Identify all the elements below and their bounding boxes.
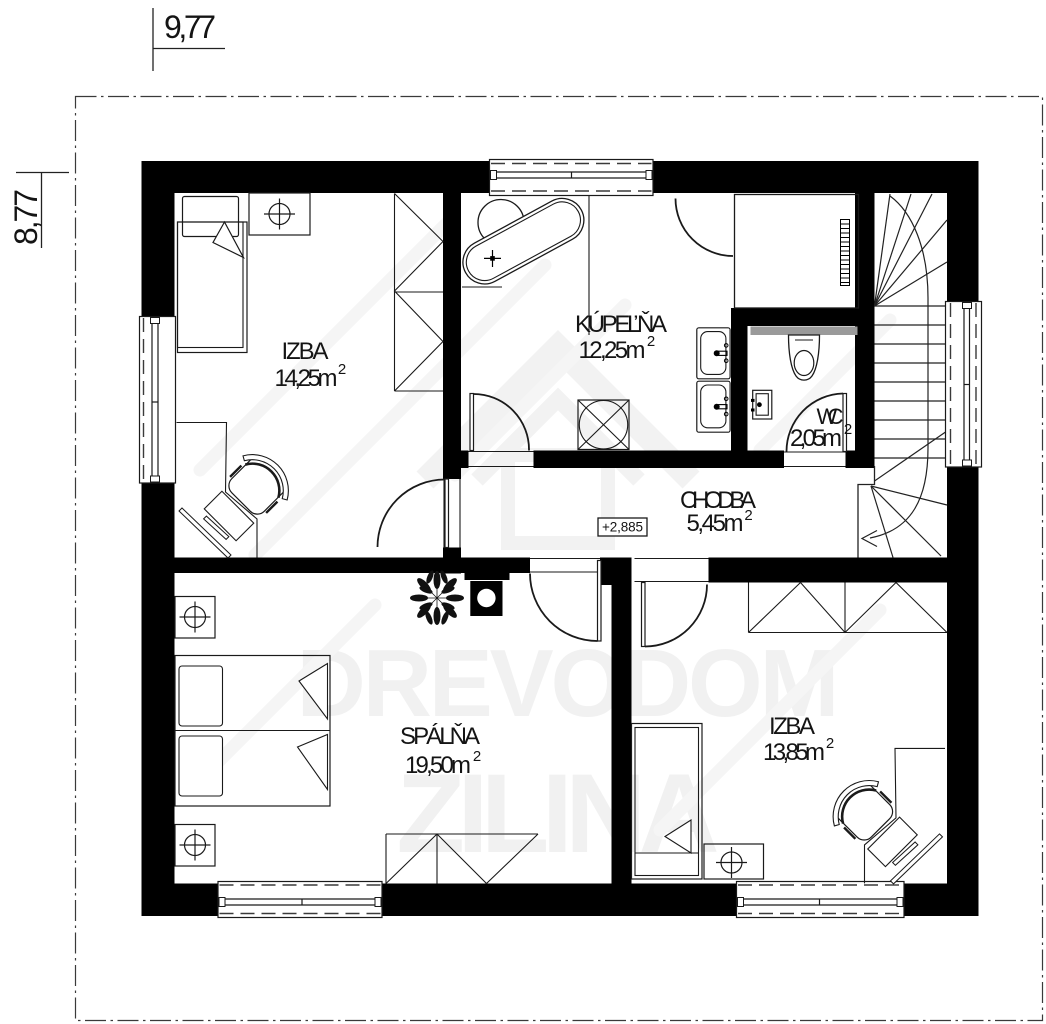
svg-text:14,25m: 14,25m <box>275 365 338 392</box>
svg-text:12,25m: 12,25m <box>579 337 646 364</box>
svg-text:2: 2 <box>338 361 346 378</box>
svg-text:IZBA: IZBA <box>769 713 815 740</box>
svg-text:2: 2 <box>473 748 481 765</box>
svg-text:19,50m: 19,50m <box>405 752 471 779</box>
svg-text:+2,885: +2,885 <box>602 520 643 535</box>
svg-text:2: 2 <box>826 735 834 752</box>
svg-text:SPÁLŇA: SPÁLŇA <box>400 723 480 750</box>
svg-text:9,77: 9,77 <box>164 9 216 45</box>
svg-text:8,77: 8,77 <box>8 189 44 245</box>
svg-text:5,45m: 5,45m <box>687 510 744 537</box>
svg-text:2: 2 <box>647 333 655 350</box>
svg-text:13,85m: 13,85m <box>763 739 825 766</box>
svg-text:IZBA: IZBA <box>282 338 329 365</box>
svg-text:DREVODOM: DREVODOM <box>297 630 840 737</box>
svg-text:2: 2 <box>744 507 752 524</box>
svg-text:2,05m: 2,05m <box>790 425 842 452</box>
svg-text:2: 2 <box>844 421 852 438</box>
